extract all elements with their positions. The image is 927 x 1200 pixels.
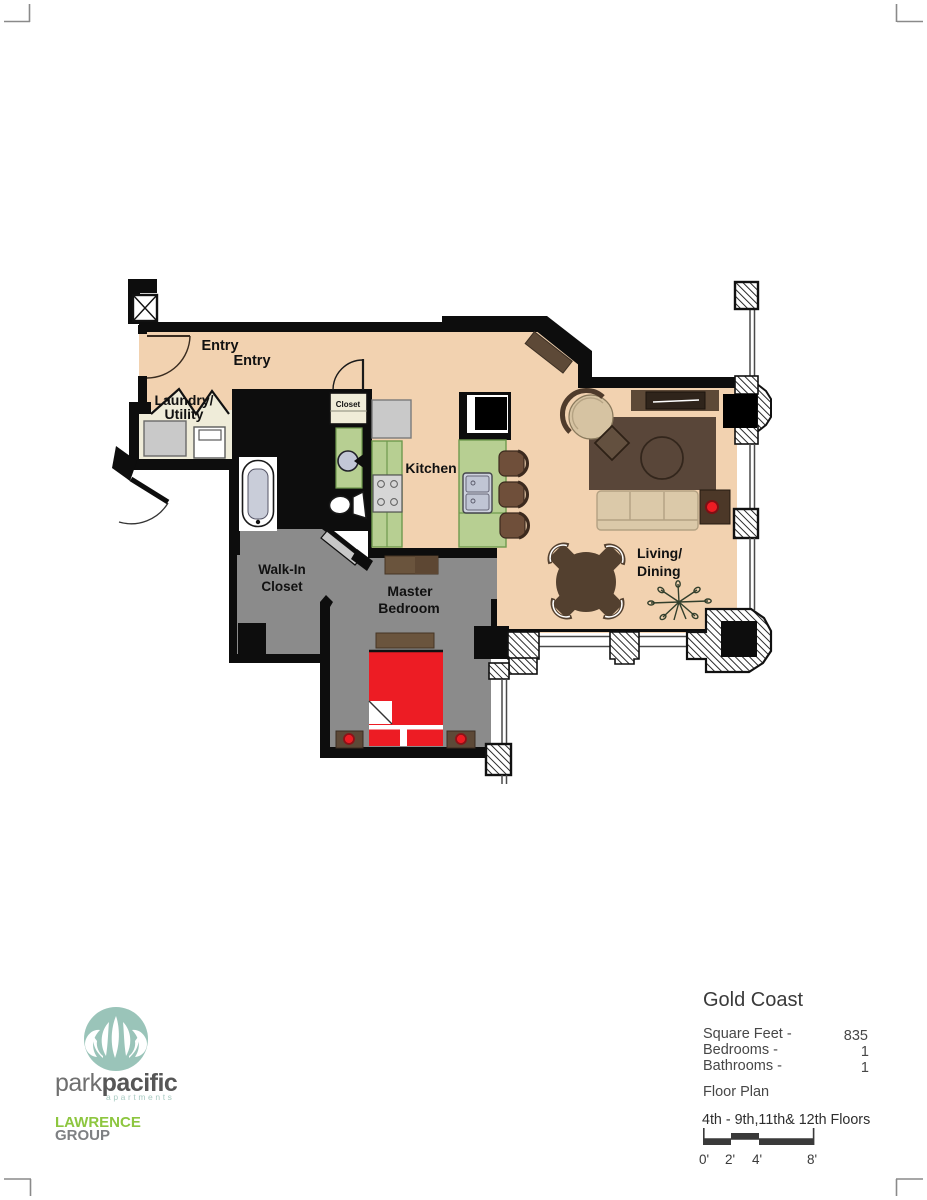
svg-text:Gold Coast: Gold Coast [703,989,803,1011]
svg-text:Floor Plan: Floor Plan [703,1084,769,1100]
svg-text:Square Feet -: Square Feet - [703,1026,792,1042]
svg-text:Living/: Living/ [637,545,682,561]
svg-text:835: 835 [844,1028,868,1044]
svg-text:4': 4' [752,1152,762,1167]
svg-text:1: 1 [861,1044,869,1060]
svg-text:Bedroom: Bedroom [378,600,439,616]
svg-text:Kitchen: Kitchen [405,460,456,476]
svg-text:Entry: Entry [201,338,238,354]
svg-text:Closet: Closet [336,400,361,409]
svg-text:apartments: apartments [106,1092,175,1102]
svg-text:2': 2' [725,1152,735,1167]
svg-text:Walk-In: Walk-In [258,562,306,577]
svg-text:GROUP: GROUP [55,1127,110,1144]
svg-text:Dining: Dining [637,563,681,579]
svg-text:Utility: Utility [165,406,204,422]
svg-text:Master: Master [387,583,433,599]
svg-text:Closet: Closet [261,579,303,594]
svg-text:1: 1 [861,1060,869,1076]
svg-text:Bathrooms -: Bathrooms - [703,1058,782,1074]
svg-text:0': 0' [699,1152,709,1167]
svg-text:8': 8' [807,1152,817,1167]
svg-text:Bedrooms -: Bedrooms - [703,1042,778,1058]
svg-text:4th - 9th,11th& 12th Floors: 4th - 9th,11th& 12th Floors [702,1112,870,1128]
svg-text:Entry: Entry [233,353,270,369]
